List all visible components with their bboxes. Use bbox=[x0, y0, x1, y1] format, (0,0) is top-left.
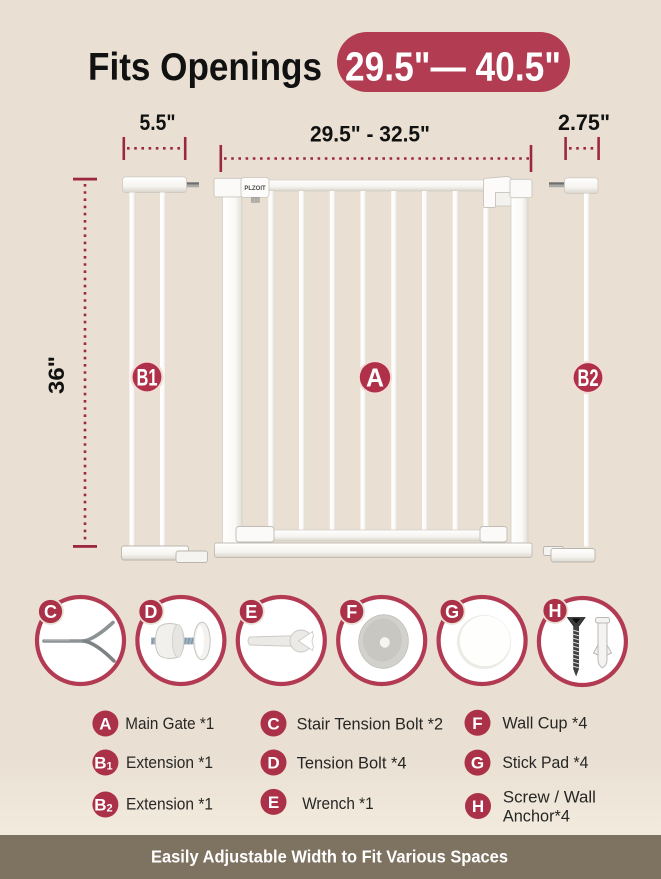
svg-text:E: E bbox=[268, 793, 279, 812]
svg-text:G: G bbox=[471, 754, 484, 773]
svg-text:F: F bbox=[346, 602, 357, 622]
svg-text:D: D bbox=[267, 754, 279, 773]
svg-text:Wall Cup *4: Wall Cup *4 bbox=[502, 714, 587, 733]
svg-text:Stair Tension Bolt *2: Stair Tension Bolt *2 bbox=[297, 714, 444, 733]
svg-text:E: E bbox=[245, 602, 257, 622]
svg-text:Wrench *1: Wrench *1 bbox=[302, 794, 374, 813]
svg-text:Fits Openings: Fits Openings bbox=[88, 46, 322, 89]
svg-text:5.5": 5.5" bbox=[140, 110, 176, 135]
svg-text:B1: B1 bbox=[137, 365, 158, 392]
svg-text:Stick Pad *4: Stick Pad *4 bbox=[502, 753, 588, 772]
svg-text:A: A bbox=[366, 362, 384, 392]
svg-text:D: D bbox=[144, 602, 157, 622]
svg-text:Screw / Wall: Screw / Wall bbox=[503, 788, 596, 807]
svg-text:Tension Bolt *4: Tension Bolt *4 bbox=[297, 753, 407, 772]
svg-text:29.5"— 40.5": 29.5"— 40.5" bbox=[345, 44, 561, 90]
svg-text:Extension *1: Extension *1 bbox=[126, 795, 213, 814]
svg-text:C: C bbox=[44, 602, 57, 622]
svg-text:H: H bbox=[549, 601, 562, 621]
svg-text:F: F bbox=[472, 714, 482, 733]
svg-text:A: A bbox=[99, 715, 111, 734]
svg-text:PLZOIT: PLZOIT bbox=[244, 186, 266, 192]
svg-text:G: G bbox=[445, 602, 459, 622]
svg-text:C: C bbox=[267, 715, 279, 734]
svg-text:Anchor*4: Anchor*4 bbox=[503, 807, 570, 826]
svg-text:B2: B2 bbox=[578, 365, 599, 392]
svg-text:H: H bbox=[472, 797, 484, 816]
svg-text:29.5" - 32.5": 29.5" - 32.5" bbox=[310, 122, 430, 147]
svg-text:Extension *1: Extension *1 bbox=[126, 753, 213, 772]
svg-text:Easily Adjustable Width to Fit: Easily Adjustable Width to Fit Various S… bbox=[151, 847, 508, 867]
svg-text:Main Gate *1: Main Gate *1 bbox=[125, 714, 214, 733]
svg-text:2.75": 2.75" bbox=[558, 110, 610, 135]
svg-text:36": 36" bbox=[44, 356, 69, 394]
